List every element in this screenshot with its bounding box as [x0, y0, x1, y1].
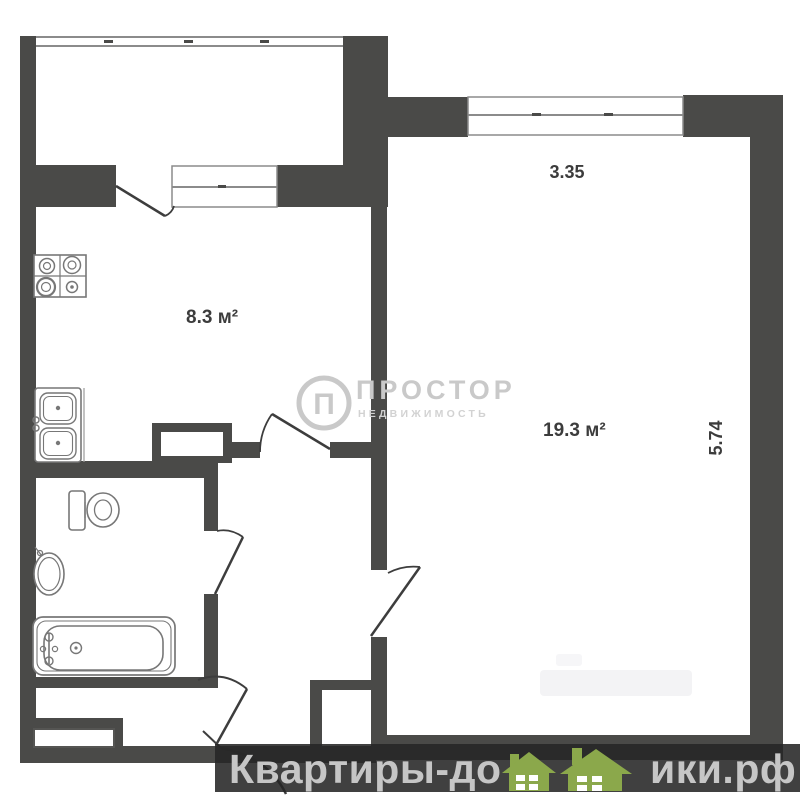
bathroom-fixtures [33, 491, 175, 675]
bathroom-door [215, 530, 243, 594]
footer-text-right: ики.рф [650, 746, 796, 792]
dimension-horizontal-label: 3.35 [549, 162, 584, 182]
wash-basin [34, 547, 64, 595]
wall-bathroom-east-lower [204, 594, 218, 688]
bathtub [33, 617, 175, 675]
agency-logo-letter: П [313, 388, 335, 421]
balcony-door [116, 186, 174, 216]
kitchen-fixtures [33, 255, 86, 462]
floor-plan-canvas: 8.3 м² 19.3 м² 3.35 5.74 П ПРОСТОР НЕДВИ… [0, 0, 800, 800]
wall-balcony-right-block [343, 36, 388, 207]
wall-hall-top-stub [330, 442, 371, 458]
wall-livingroom-north-arm [387, 97, 468, 137]
agency-watermark: П ПРОСТОР НЕДВИЖИМОСТЬ [299, 375, 516, 428]
wall-bathroom-east-upper [204, 478, 218, 531]
wall-kitchen-north-left [36, 165, 116, 207]
wall-kitchen-north-right [277, 165, 343, 207]
footer-banner: Квартиры-до ики.рф [215, 744, 800, 792]
wall-right-outer [750, 130, 783, 760]
entry-closet-box [34, 729, 114, 747]
stove [34, 255, 86, 297]
livingroom-area-label: 19.3 м² [543, 420, 606, 441]
agency-watermark-subtitle: НЕДВИЖИМОСТЬ [358, 408, 489, 420]
wall-shaft-top [310, 680, 371, 690]
footer-text-left: Квартиры-до [229, 746, 502, 792]
toilet [69, 491, 119, 530]
wall-bathroom-north [20, 461, 218, 478]
dimension-vertical-label: 5.74 [706, 420, 726, 455]
faint-artifact [540, 654, 692, 696]
duct-box-interior [161, 432, 223, 456]
kitchen-window-tick [218, 185, 226, 188]
kitchen-area-label: 8.3 м² [186, 307, 238, 328]
balcony-glazing-ticks [104, 40, 269, 43]
wall-livingroom-west-lower [371, 637, 387, 760]
livingroom-door [371, 567, 420, 636]
wall-bathroom-south [30, 677, 204, 688]
kitchen-sink [33, 388, 84, 462]
floor-plan-image: 8.3 м² 19.3 м² 3.35 5.74 П ПРОСТОР НЕДВИ… [0, 0, 800, 800]
agency-watermark-title: ПРОСТОР [356, 375, 516, 405]
